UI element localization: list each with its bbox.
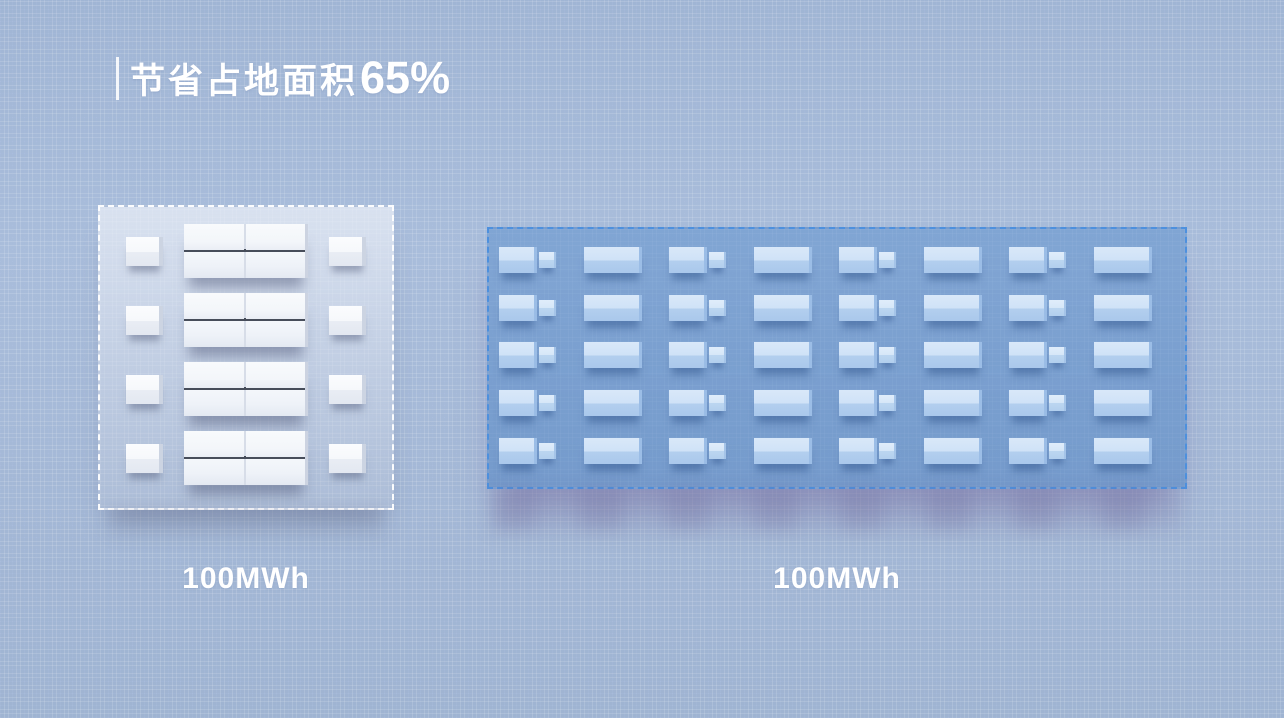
title: 节省占地面积 65%: [116, 52, 450, 104]
title-percent-value: 65%: [360, 52, 450, 104]
battery-container: [246, 362, 306, 388]
pcs-box: [709, 300, 726, 316]
pcs-box: [879, 443, 896, 459]
battery-container: [246, 390, 306, 416]
container-unit: [1094, 379, 1179, 427]
battery-container: [924, 390, 982, 416]
battery-container: [669, 247, 707, 273]
battery-container: [669, 390, 707, 416]
container-unit: [584, 284, 669, 332]
container-unit: [1094, 236, 1179, 284]
title-accent-bar: [116, 57, 119, 100]
battery-container: [184, 431, 244, 457]
battery-container: [924, 295, 982, 321]
container-with-pcs-unit: [1009, 427, 1094, 475]
container-with-pcs-unit: [1009, 236, 1094, 284]
pcs-box: [1049, 300, 1066, 316]
battery-container: [184, 459, 244, 485]
battery-container: [924, 342, 982, 368]
container-unit: [584, 236, 669, 284]
container-unit: [1094, 332, 1179, 380]
pcs-box: [709, 347, 726, 363]
battery-container: [1009, 342, 1047, 368]
container-with-pcs-unit: [839, 427, 924, 475]
battery-container: [499, 295, 537, 321]
right-capacity-label: 100MWh: [487, 562, 1187, 596]
aux-unit-box: [329, 444, 366, 473]
pcs-box: [709, 252, 726, 268]
container-quad-block: [184, 293, 308, 347]
battery-container: [246, 224, 306, 250]
battery-container: [184, 362, 244, 388]
conventional-site-platform: [487, 227, 1187, 489]
container-with-pcs-unit: [839, 332, 924, 380]
aux-unit-box: [329, 237, 366, 266]
title-prefix: 节省占地面积: [130, 53, 358, 104]
battery-container: [754, 438, 812, 464]
container-unit: [924, 332, 1009, 380]
pcs-box: [539, 300, 556, 316]
battery-container: [1094, 342, 1152, 368]
container-quad-block: [184, 224, 308, 278]
compact-site-platform: [98, 205, 394, 510]
battery-container: [1009, 390, 1047, 416]
battery-container: [839, 390, 877, 416]
pcs-box: [539, 347, 556, 363]
container-unit: [924, 379, 1009, 427]
battery-container: [839, 438, 877, 464]
aux-unit-box: [329, 306, 366, 335]
battery-container: [584, 342, 642, 368]
container-unit: [584, 379, 669, 427]
space-saving-comparison-diagram: 节省占地面积 65% 100MWh 100MWh: [0, 0, 1284, 718]
aux-unit-box: [126, 375, 163, 404]
pcs-box: [539, 252, 556, 268]
left-site-row: [126, 361, 366, 417]
battery-container: [839, 342, 877, 368]
left-site-row: [126, 292, 366, 348]
battery-container: [246, 252, 306, 278]
container-unit: [924, 427, 1009, 475]
container-with-pcs-unit: [669, 236, 754, 284]
battery-container: [924, 247, 982, 273]
battery-container: [499, 247, 537, 273]
container-with-pcs-unit: [839, 236, 924, 284]
container-unit: [924, 236, 1009, 284]
battery-container: [669, 438, 707, 464]
container-with-pcs-unit: [669, 427, 754, 475]
container-quad-block: [184, 431, 308, 485]
container-with-pcs-unit: [669, 332, 754, 380]
pcs-box: [709, 395, 726, 411]
battery-container: [184, 293, 244, 319]
battery-container: [924, 438, 982, 464]
container-with-pcs-unit: [839, 379, 924, 427]
battery-container: [669, 295, 707, 321]
battery-container: [1009, 247, 1047, 273]
battery-container: [1094, 390, 1152, 416]
aux-unit-box: [329, 375, 366, 404]
aux-unit-box: [126, 306, 163, 335]
container-unit: [584, 332, 669, 380]
pcs-box: [879, 347, 896, 363]
battery-container: [754, 247, 812, 273]
battery-container: [184, 224, 244, 250]
battery-container: [1009, 438, 1047, 464]
container-unit: [754, 427, 839, 475]
battery-container: [246, 431, 306, 457]
container-with-pcs-unit: [499, 379, 584, 427]
pcs-box: [539, 395, 556, 411]
battery-container: [184, 321, 244, 347]
title-text: 节省占地面积 65%: [130, 52, 450, 104]
battery-container: [754, 295, 812, 321]
battery-container: [499, 342, 537, 368]
container-with-pcs-unit: [1009, 379, 1094, 427]
pcs-box: [539, 443, 556, 459]
battery-container: [184, 252, 244, 278]
pcs-box: [709, 443, 726, 459]
battery-container: [754, 390, 812, 416]
container-unit: [754, 284, 839, 332]
aux-unit-box: [126, 444, 163, 473]
left-capacity-label: 100MWh: [98, 562, 394, 596]
container-with-pcs-unit: [669, 284, 754, 332]
container-with-pcs-unit: [1009, 332, 1094, 380]
container-unit: [584, 427, 669, 475]
battery-container: [839, 295, 877, 321]
battery-container: [584, 390, 642, 416]
battery-container: [584, 247, 642, 273]
container-unit: [754, 379, 839, 427]
battery-container: [246, 459, 306, 485]
container-unit: [1094, 284, 1179, 332]
battery-container: [584, 438, 642, 464]
pcs-box: [879, 252, 896, 268]
battery-container: [1094, 247, 1152, 273]
battery-container: [839, 247, 877, 273]
container-with-pcs-unit: [499, 284, 584, 332]
battery-container: [246, 293, 306, 319]
left-site-row: [126, 430, 366, 486]
battery-container: [754, 342, 812, 368]
container-unit: [1094, 427, 1179, 475]
battery-container: [184, 390, 244, 416]
container-with-pcs-unit: [669, 379, 754, 427]
container-unit: [924, 284, 1009, 332]
pcs-box: [879, 300, 896, 316]
pcs-box: [1049, 443, 1066, 459]
container-with-pcs-unit: [499, 332, 584, 380]
container-with-pcs-unit: [1009, 284, 1094, 332]
battery-container: [246, 321, 306, 347]
container-unit: [754, 332, 839, 380]
container-unit: [754, 236, 839, 284]
container-with-pcs-unit: [499, 427, 584, 475]
pcs-box: [1049, 347, 1066, 363]
container-with-pcs-unit: [839, 284, 924, 332]
battery-container: [584, 295, 642, 321]
battery-container: [499, 438, 537, 464]
battery-container: [1009, 295, 1047, 321]
container-with-pcs-unit: [499, 236, 584, 284]
left-site-row: [126, 223, 366, 279]
pcs-box: [1049, 252, 1066, 268]
battery-container: [1094, 438, 1152, 464]
pcs-box: [879, 395, 896, 411]
battery-container: [499, 390, 537, 416]
container-quad-block: [184, 362, 308, 416]
battery-container: [1094, 295, 1152, 321]
battery-container: [669, 342, 707, 368]
pcs-box: [1049, 395, 1066, 411]
aux-unit-box: [126, 237, 163, 266]
